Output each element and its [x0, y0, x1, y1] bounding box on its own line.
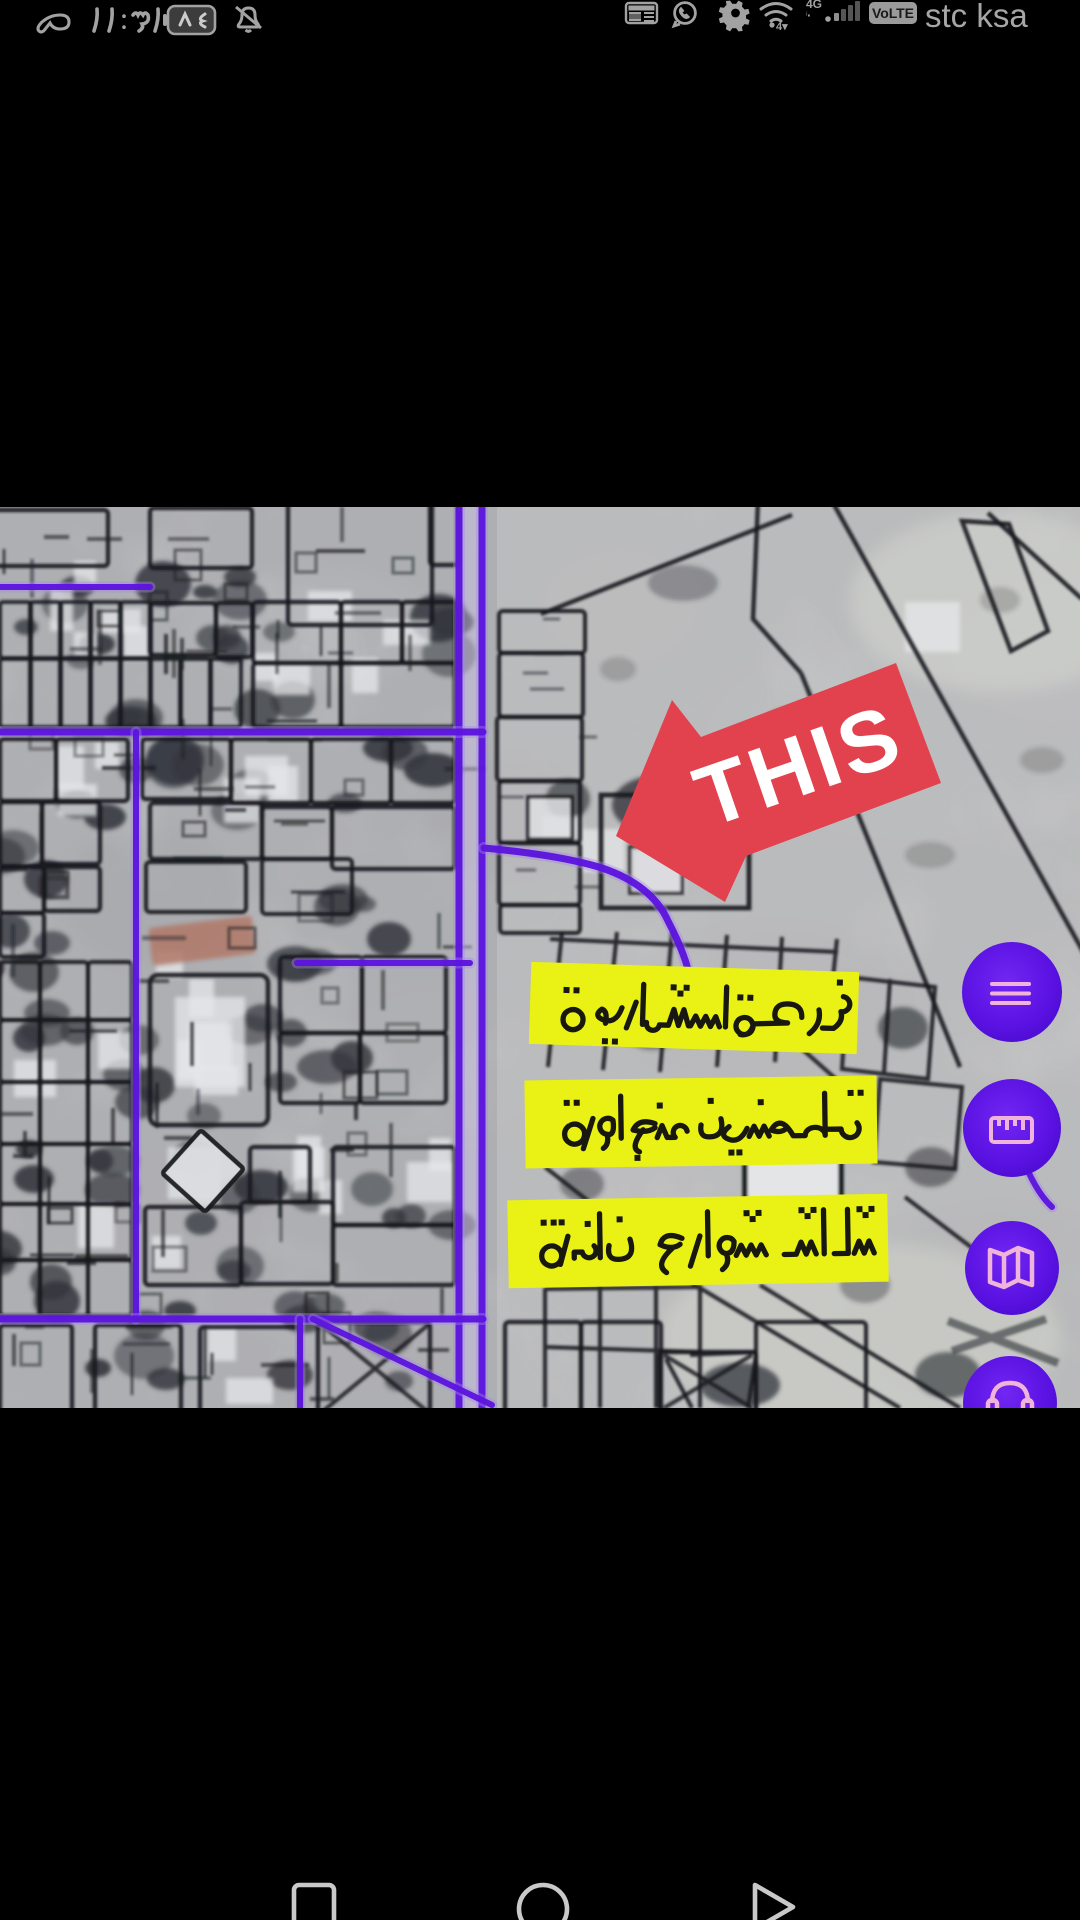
svg-text:ⁱ⬝: ⁱ⬝ — [806, 10, 811, 20]
svg-text:stc ksa: stc ksa — [925, 0, 1028, 34]
svg-text:4▾: 4▾ — [776, 21, 788, 33]
svg-text:VoLTE: VoLTE — [872, 5, 914, 21]
